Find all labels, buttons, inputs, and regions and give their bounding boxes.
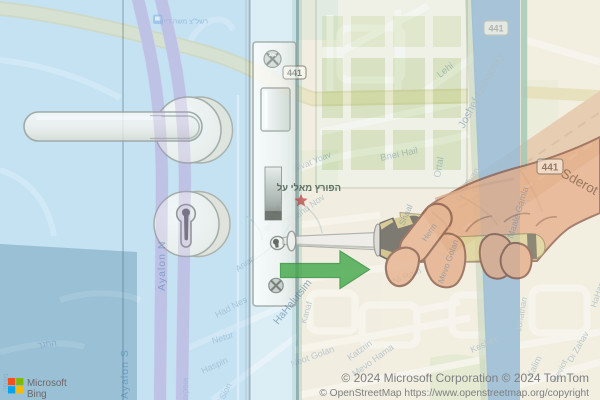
svg-text:Microsoft: Microsoft [27, 378, 67, 389]
svg-text:Ayalon N: Ayalon N [156, 241, 168, 291]
svg-text:441: 441 [542, 163, 559, 174]
svg-text:הפורץ מאלי על: הפורץ מאלי על [277, 183, 341, 194]
svg-text:441: 441 [287, 68, 302, 78]
svg-text:Bing: Bing [27, 389, 47, 400]
svg-text:Ayalon S: Ayalon S [119, 349, 131, 399]
svg-text:© OpenStreetMap https://www.op: © OpenStreetMap https://www.openstreetma… [319, 388, 589, 399]
svg-text:© 2024 Microsoft Corporation ©: © 2024 Microsoft Corporation © 2024 TomT… [341, 371, 589, 385]
